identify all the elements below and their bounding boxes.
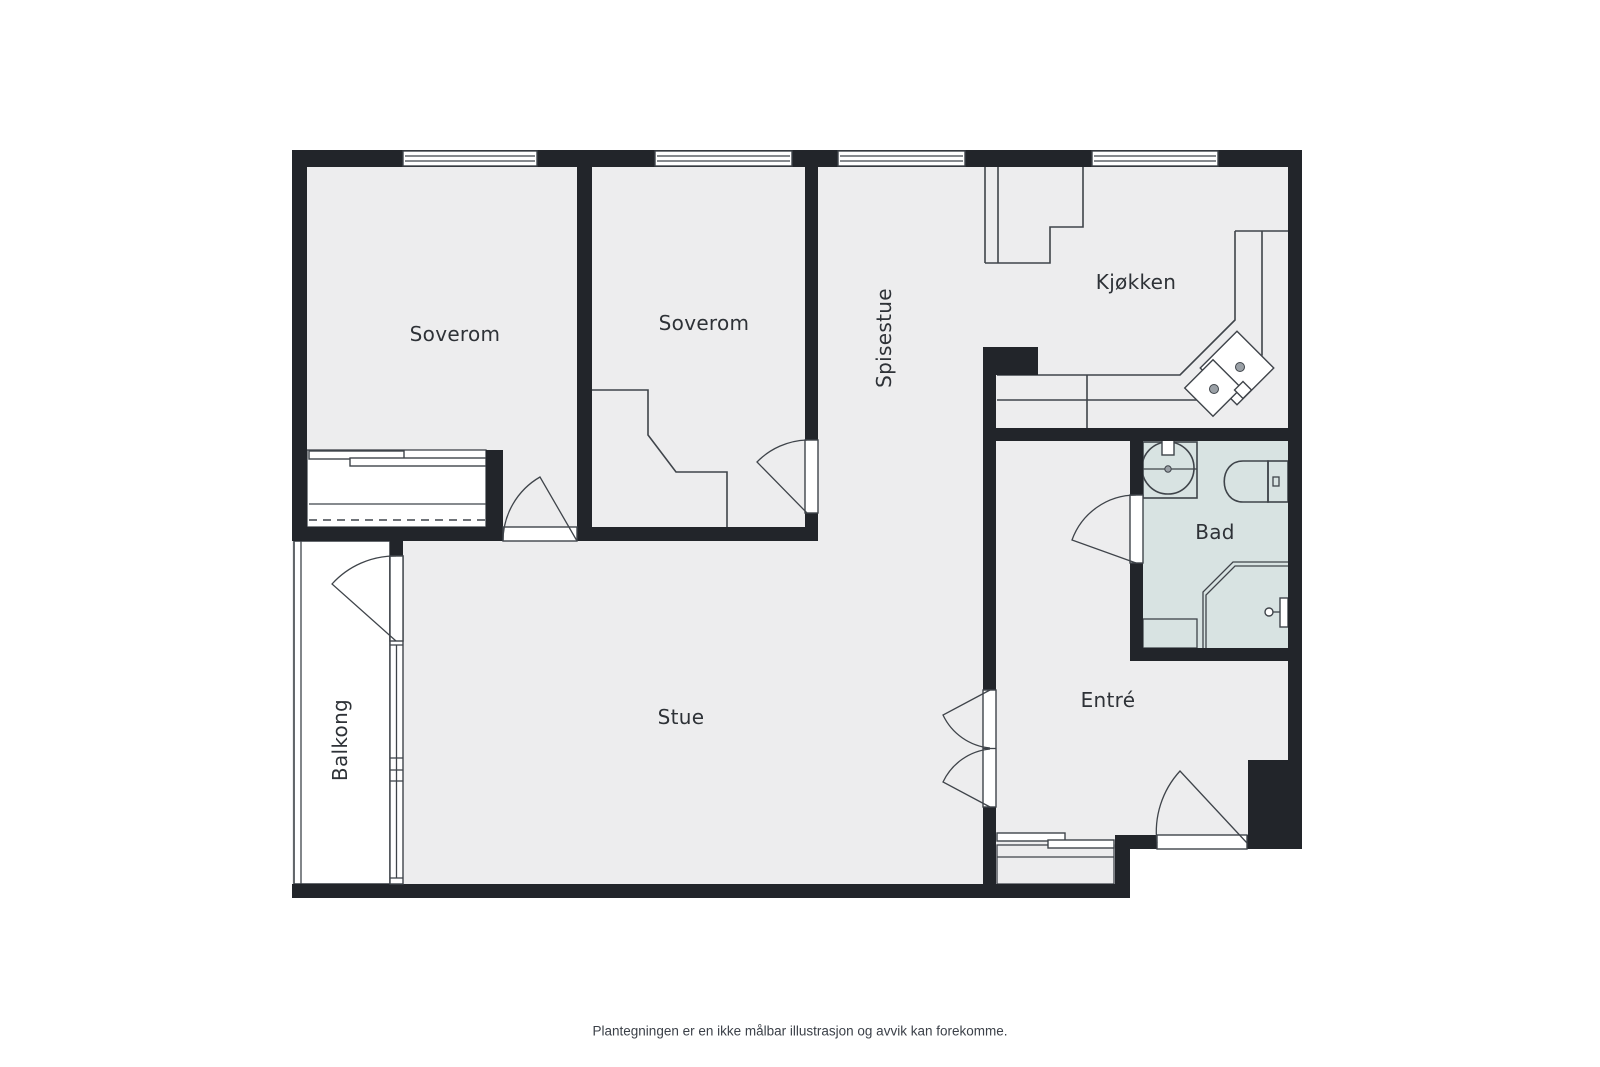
window	[838, 151, 965, 166]
room-label-kjokken: Kjøkken	[1096, 270, 1176, 294]
room-label-stue: Stue	[658, 705, 705, 729]
room-label-soverom-1: Soverom	[410, 322, 501, 346]
room-label-spisestue: Spisestue	[872, 288, 896, 388]
window	[403, 151, 537, 166]
disclaimer-text: Plantegningen er en ikke målbar illustra…	[593, 1024, 1008, 1039]
floorplan-drawing	[0, 0, 1600, 1067]
floor-areas	[292, 150, 1302, 898]
window	[655, 151, 792, 166]
window	[1092, 151, 1218, 166]
room-label-soverom-2: Soverom	[659, 311, 750, 335]
room-label-bad: Bad	[1195, 520, 1235, 544]
floorplan-page: Soverom Soverom Spisestue Kjøkken Bad En…	[0, 0, 1600, 1067]
room-label-balkong: Balkong	[328, 699, 352, 781]
room-label-entre: Entré	[1081, 688, 1136, 712]
bathroom-floor	[1130, 428, 1288, 661]
